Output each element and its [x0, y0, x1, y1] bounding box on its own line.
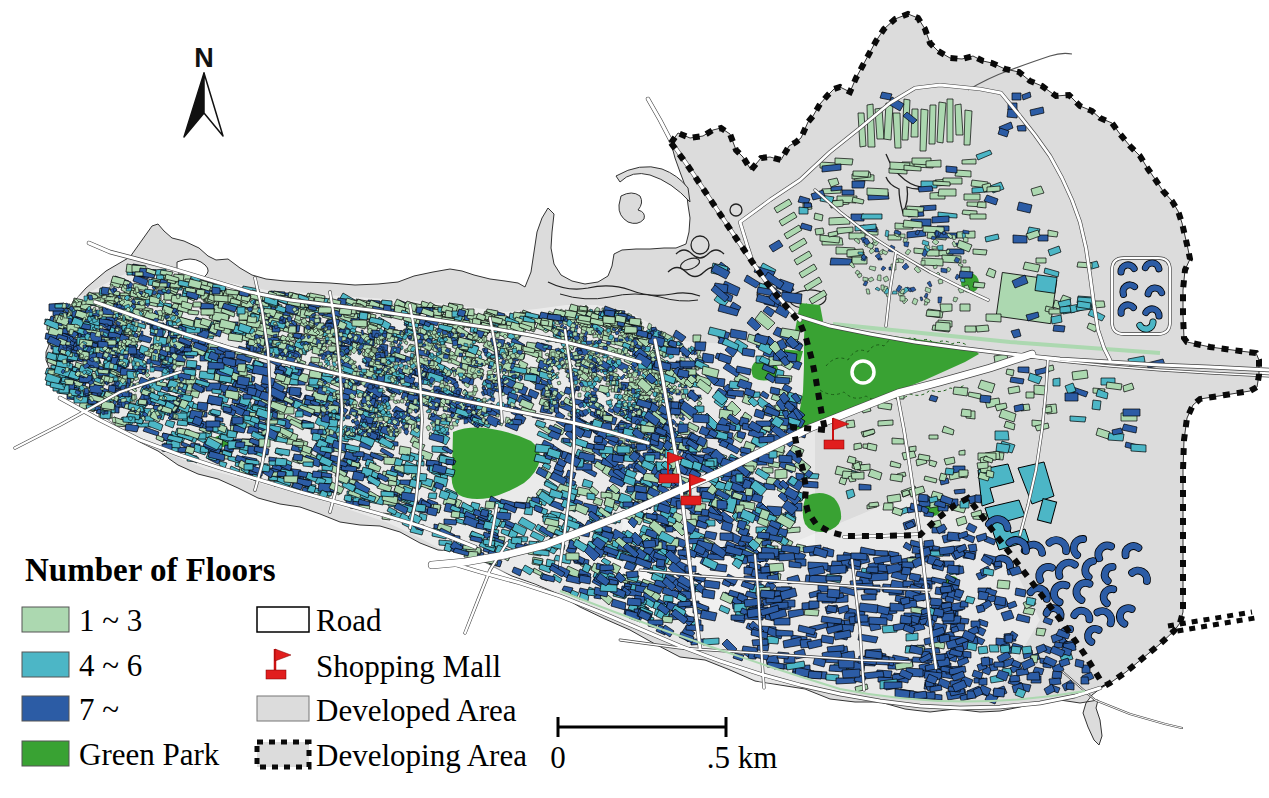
svg-text:4 ~ 6: 4 ~ 6	[79, 648, 142, 683]
svg-text:7 ~: 7 ~	[79, 692, 119, 727]
svg-text:0: 0	[550, 740, 566, 775]
svg-text:Developing Area: Developing Area	[316, 738, 527, 773]
svg-text:Developed Area: Developed Area	[316, 693, 517, 728]
svg-text:Green Park: Green Park	[79, 737, 220, 772]
svg-text:1 ~ 3: 1 ~ 3	[79, 603, 142, 638]
svg-text:N: N	[194, 43, 214, 73]
svg-text:Road: Road	[316, 603, 382, 638]
svg-text:.5 km: .5 km	[707, 740, 778, 775]
svg-text:Number of Floors: Number of Floors	[25, 552, 276, 588]
svg-text:Shopping Mall: Shopping Mall	[316, 649, 501, 684]
